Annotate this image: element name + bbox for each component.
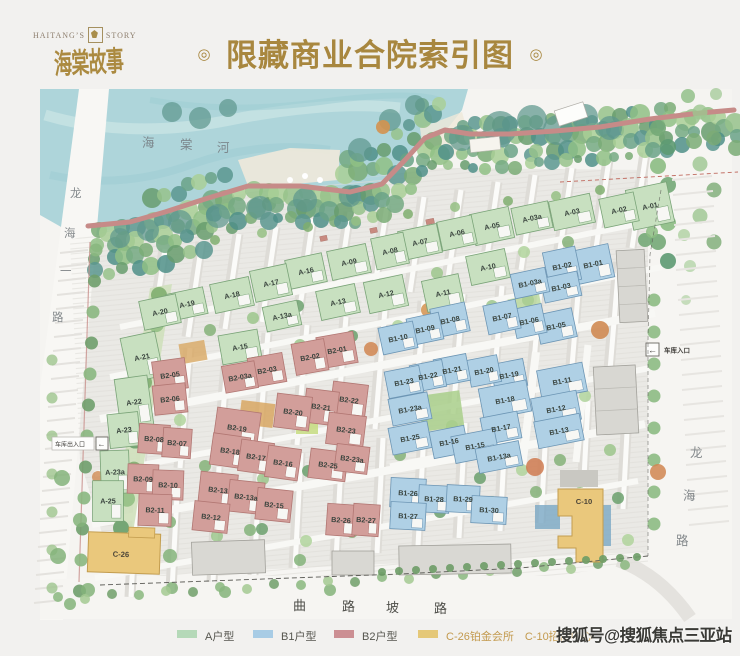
- svg-text:B2-27: B2-27: [356, 515, 376, 525]
- svg-text:C-26: C-26: [113, 550, 130, 560]
- svg-text:B1-28: B1-28: [424, 494, 444, 504]
- svg-text:A-23: A-23: [116, 425, 132, 436]
- svg-text:B1-26: B1-26: [398, 488, 418, 498]
- svg-text:海: 海: [142, 135, 155, 150]
- svg-text:A-23a: A-23a: [105, 467, 126, 477]
- svg-text:龙: 龙: [70, 187, 82, 200]
- svg-text:B1-29: B1-29: [453, 494, 473, 504]
- svg-text:路: 路: [52, 310, 64, 324]
- svg-text:B2-10: B2-10: [158, 480, 178, 490]
- svg-text:B1-30: B1-30: [479, 505, 499, 515]
- svg-text:←: ←: [98, 440, 106, 449]
- svg-text:海: 海: [64, 226, 76, 240]
- svg-text:路: 路: [342, 599, 355, 614]
- svg-text:曲: 曲: [293, 598, 306, 613]
- svg-text:海: 海: [683, 488, 696, 503]
- svg-text:路: 路: [434, 601, 447, 616]
- svg-text:B2-07: B2-07: [167, 438, 187, 448]
- svg-text:河: 河: [217, 141, 230, 155]
- svg-text:路: 路: [676, 533, 689, 548]
- svg-text:C-10: C-10: [576, 497, 592, 506]
- svg-text:B2-08: B2-08: [144, 434, 164, 444]
- svg-text:B2-26: B2-26: [331, 515, 351, 525]
- svg-text:B2-09: B2-09: [133, 474, 153, 484]
- svg-text:棠: 棠: [180, 138, 193, 152]
- svg-text:车库出入口: 车库出入口: [55, 441, 85, 449]
- svg-text:龙: 龙: [690, 446, 703, 460]
- svg-text:A-25: A-25: [100, 497, 116, 506]
- svg-text:B1-27: B1-27: [398, 511, 418, 521]
- svg-text:B2-11: B2-11: [145, 505, 164, 515]
- svg-text:←: ←: [648, 345, 657, 355]
- svg-text:坡: 坡: [386, 600, 399, 615]
- svg-text:一: 一: [60, 266, 72, 278]
- svg-text:车库入口: 车库入口: [664, 346, 690, 355]
